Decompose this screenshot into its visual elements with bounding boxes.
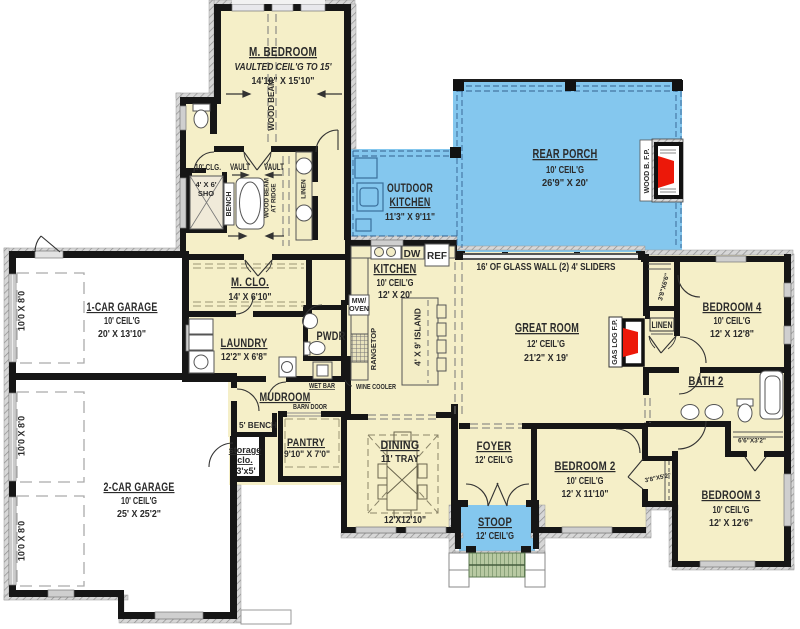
svg-text:12' X 12'8": 12' X 12'8" (710, 329, 754, 340)
svg-text:12' CEIL'G: 12' CEIL'G (475, 455, 513, 466)
svg-text:1-CAR GARAGE: 1-CAR GARAGE (87, 302, 158, 314)
svg-text:14'10" X 15'10": 14'10" X 15'10" (252, 75, 315, 87)
svg-text:10' CEIL'G: 10' CEIL'G (377, 278, 414, 289)
svg-text:MUDROOM: MUDROOM (260, 392, 311, 404)
svg-text:4' X 9' ISLAND: 4' X 9' ISLAND (412, 308, 422, 366)
svg-text:12' X 11'10": 12' X 11'10" (562, 489, 609, 500)
svg-text:VAULT: VAULT (264, 162, 284, 172)
svg-text:10' CEIL'G: 10' CEIL'G (546, 164, 584, 176)
svg-text:DW: DW (404, 249, 421, 260)
svg-text:M. CLO.: M. CLO. (231, 275, 269, 289)
svg-text:AT RIDGE: AT RIDGE (271, 183, 278, 212)
svg-text:21'2" X 19': 21'2" X 19' (524, 352, 568, 364)
svg-text:25' X 25'2": 25' X 25'2" (117, 509, 161, 520)
svg-text:VAULT: VAULT (230, 162, 250, 172)
svg-text:M. BEDROOM: M. BEDROOM (249, 44, 317, 59)
svg-text:9'10" X 7'0": 9'10" X 7'0" (284, 449, 330, 460)
svg-text:PANTRY: PANTRY (287, 437, 325, 449)
svg-text:WOOD BEAM: WOOD BEAM (264, 178, 271, 218)
svg-text:storage: storage (229, 445, 262, 455)
svg-text:REAR PORCH: REAR PORCH (533, 146, 598, 161)
svg-text:LAUNDRY: LAUNDRY (221, 336, 268, 350)
svg-text:11' TRAY: 11' TRAY (381, 453, 419, 465)
svg-text:10'0 X 8'0: 10'0 X 8'0 (16, 291, 26, 331)
svg-text:clo.: clo. (237, 455, 253, 465)
svg-text:12' CEIL'G: 12' CEIL'G (476, 531, 514, 542)
svg-text:2-CAR GARAGE: 2-CAR GARAGE (104, 482, 175, 494)
svg-text:12'X12'10": 12'X12'10" (384, 515, 426, 526)
svg-text:RANGETOP: RANGETOP (369, 328, 378, 370)
svg-text:3'x5': 3'x5' (236, 466, 255, 476)
svg-text:10' CEIL'G: 10' CEIL'G (714, 316, 751, 327)
svg-text:STOOP: STOOP (478, 517, 512, 529)
svg-text:GREAT ROOM: GREAT ROOM (515, 320, 579, 335)
svg-text:DINING: DINING (381, 438, 420, 452)
svg-text:10' CEIL'G: 10' CEIL'G (104, 316, 140, 327)
svg-text:LINEN: LINEN (652, 320, 673, 330)
svg-text:BEDROOM 4: BEDROOM 4 (703, 300, 762, 314)
svg-text:BEDROOM 2: BEDROOM 2 (555, 459, 616, 473)
svg-text:12'2" X 6'8": 12'2" X 6'8" (221, 352, 267, 363)
svg-text:14' X 6'10": 14' X 6'10" (229, 292, 272, 303)
svg-text:SHO: SHO (198, 189, 214, 198)
svg-text:12' CEIL'G: 12' CEIL'G (527, 338, 565, 350)
svg-text:WINE COOLER: WINE COOLER (356, 384, 396, 391)
svg-text:12' X 12'6": 12' X 12'6" (709, 518, 753, 529)
svg-text:4' X 6': 4' X 6' (195, 180, 216, 189)
svg-text:10' CLG.: 10' CLG. (195, 162, 221, 172)
svg-text:20' X 13'10": 20' X 13'10" (98, 329, 146, 340)
svg-text:BEDROOM 3: BEDROOM 3 (702, 488, 761, 502)
svg-text:WOOD B. F.P.: WOOD B. F.P. (644, 149, 651, 194)
svg-text:5' BENCH: 5' BENCH (239, 420, 277, 430)
svg-text:12' X 20': 12' X 20' (378, 290, 412, 301)
svg-text:MW/: MW/ (352, 298, 366, 305)
svg-text:KITCHEN: KITCHEN (390, 197, 431, 209)
svg-text:10' CEIL'G: 10' CEIL'G (121, 496, 157, 507)
svg-text:10'0 X 8'0: 10'0 X 8'0 (16, 416, 26, 456)
svg-text:16' OF GLASS WALL (2) 4' SLIDE: 16' OF GLASS WALL (2) 4' SLIDERS (477, 261, 616, 273)
svg-text:LINEN: LINEN (301, 179, 308, 199)
svg-text:BATH 2: BATH 2 (689, 376, 724, 388)
svg-text:FOYER: FOYER (477, 439, 512, 453)
svg-text:10' CEIL'G: 10' CEIL'G (567, 476, 604, 487)
svg-text:OVEN: OVEN (349, 306, 369, 313)
svg-text:OUTDOOR: OUTDOOR (387, 183, 433, 195)
svg-text:WOOD BEAM: WOOD BEAM (267, 79, 276, 131)
svg-text:10'0 X 8'0: 10'0 X 8'0 (16, 521, 26, 561)
svg-text:KITCHEN: KITCHEN (374, 262, 417, 276)
svg-text:11'3" X 9'11": 11'3" X 9'11" (385, 212, 435, 223)
svg-text:REF: REF (427, 251, 447, 262)
svg-text:WET BAR: WET BAR (309, 383, 335, 390)
svg-text:6'6"X3'2": 6'6"X3'2" (738, 438, 766, 445)
svg-text:GAS LOG F.P.: GAS LOG F.P. (612, 319, 619, 364)
svg-text:10' CEIL'G: 10' CEIL'G (713, 505, 750, 516)
svg-text:26'9" X 20': 26'9" X 20' (542, 177, 588, 189)
svg-text:PWDR: PWDR (317, 331, 346, 343)
svg-text:BENCH: BENCH (226, 192, 233, 217)
svg-text:BARN DOOR: BARN DOOR (293, 404, 327, 411)
svg-text:VAULTED CEIL'G TO 15': VAULTED CEIL'G TO 15' (235, 61, 332, 73)
